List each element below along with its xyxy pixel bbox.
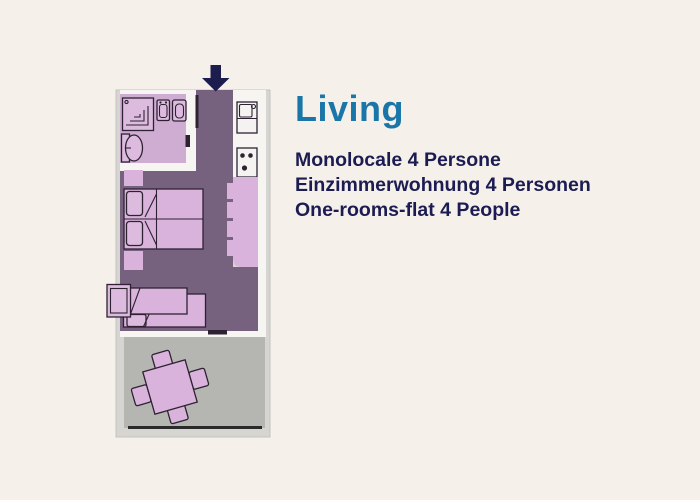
living-floorplan-page: Living Monolocale 4 Persone Einzimmerwoh…: [0, 0, 700, 500]
nightstand: [124, 251, 143, 270]
bathroom-sink: [157, 100, 170, 121]
bathroom-door-marker: [186, 135, 191, 147]
wall-top: [120, 90, 186, 94]
wardrobe-shelf: [227, 221, 235, 237]
description-line-de: Einzimmerwohnung 4 Personen: [295, 173, 591, 198]
pillow: [127, 222, 143, 246]
stove: [237, 148, 257, 177]
terrace-railing: [128, 426, 262, 429]
stove-top: [237, 148, 257, 177]
wardrobe-shelf: [227, 183, 235, 199]
pillow: [127, 192, 143, 216]
nightstand: [124, 170, 143, 186]
wall-terrace: [120, 331, 266, 337]
description-line-it: Monolocale 4 Persone: [295, 148, 591, 173]
description-line-en: One-rooms-flat 4 People: [295, 198, 591, 223]
wardrobe-shelf: [227, 240, 235, 256]
terrace-door-threshold: [208, 330, 227, 335]
page-title: Living: [295, 88, 404, 130]
tap-icon: [159, 101, 161, 103]
kitchen-sink: [237, 102, 257, 133]
entrance-arrow-icon: [202, 65, 230, 92]
wall-bathroom-bottom: [120, 163, 196, 171]
toilet: [173, 100, 187, 121]
wall-right: [258, 90, 266, 337]
wall-bathroom-corridor: [186, 90, 196, 163]
burner-icon: [248, 153, 253, 158]
wardrobe: [233, 177, 258, 267]
entry-door-leaf: [196, 95, 199, 128]
apartment-description: Monolocale 4 Persone Einzimmerwohnung 4 …: [295, 148, 591, 223]
tap-icon: [165, 101, 167, 103]
bidet: [122, 134, 143, 162]
shower: [123, 98, 154, 131]
floorplan-graphic: [0, 0, 700, 500]
burner-icon: [240, 153, 245, 158]
burner-icon: [242, 165, 247, 170]
wardrobe-shelf: [227, 202, 235, 218]
